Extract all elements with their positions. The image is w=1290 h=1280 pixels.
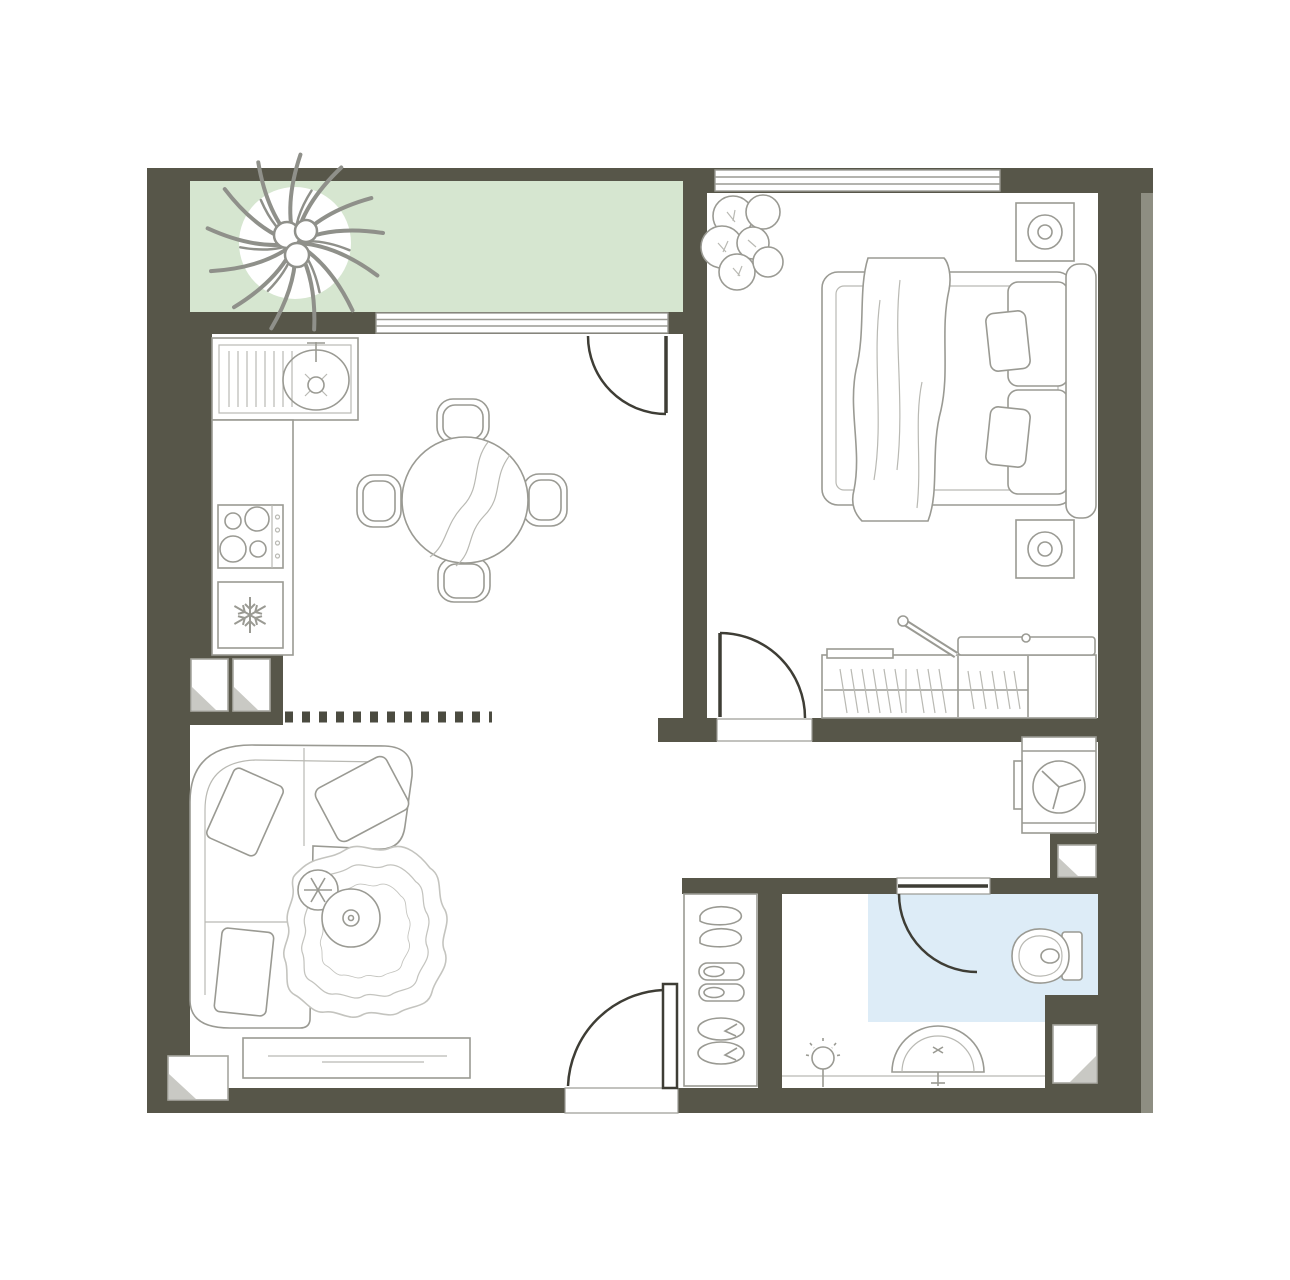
washing-machine-icon bbox=[1014, 737, 1096, 833]
cooktop-icon bbox=[218, 505, 283, 568]
kitchen bbox=[212, 338, 358, 655]
vent-shaft-icon bbox=[191, 659, 228, 711]
toilet-icon bbox=[1012, 929, 1082, 983]
shoe-cabinet bbox=[684, 894, 757, 1086]
refrigerator-icon bbox=[218, 582, 283, 648]
wardrobe-icon bbox=[822, 616, 1096, 718]
wall-edge-shade bbox=[1141, 193, 1153, 1113]
bedroom-plant-icon bbox=[701, 195, 783, 290]
coffee-table-large-icon bbox=[322, 889, 380, 947]
living-room bbox=[190, 745, 470, 1078]
vent-shaft-icon bbox=[233, 659, 270, 711]
bedroom-door bbox=[717, 633, 812, 741]
washbasin-icon bbox=[892, 1026, 984, 1086]
vent-shaft-icon bbox=[168, 1056, 228, 1100]
wall-lamp-icon bbox=[806, 1038, 840, 1087]
balcony-window bbox=[376, 313, 668, 333]
balcony-door bbox=[588, 336, 666, 414]
vent-shaft-icon bbox=[1053, 1025, 1097, 1083]
vent-shaft-icon bbox=[1058, 845, 1096, 877]
bedroom bbox=[701, 195, 1096, 718]
kitchen-sink-icon bbox=[212, 338, 358, 420]
floor-plan bbox=[0, 0, 1290, 1280]
headboard bbox=[1066, 264, 1096, 518]
tv-stand-icon bbox=[243, 1038, 470, 1078]
entrance-door bbox=[565, 984, 678, 1113]
dining-set bbox=[357, 399, 567, 602]
bedroom-window bbox=[715, 170, 1000, 191]
floor-plan-canvas bbox=[0, 0, 1290, 1280]
ironing-board-icon bbox=[898, 616, 956, 655]
